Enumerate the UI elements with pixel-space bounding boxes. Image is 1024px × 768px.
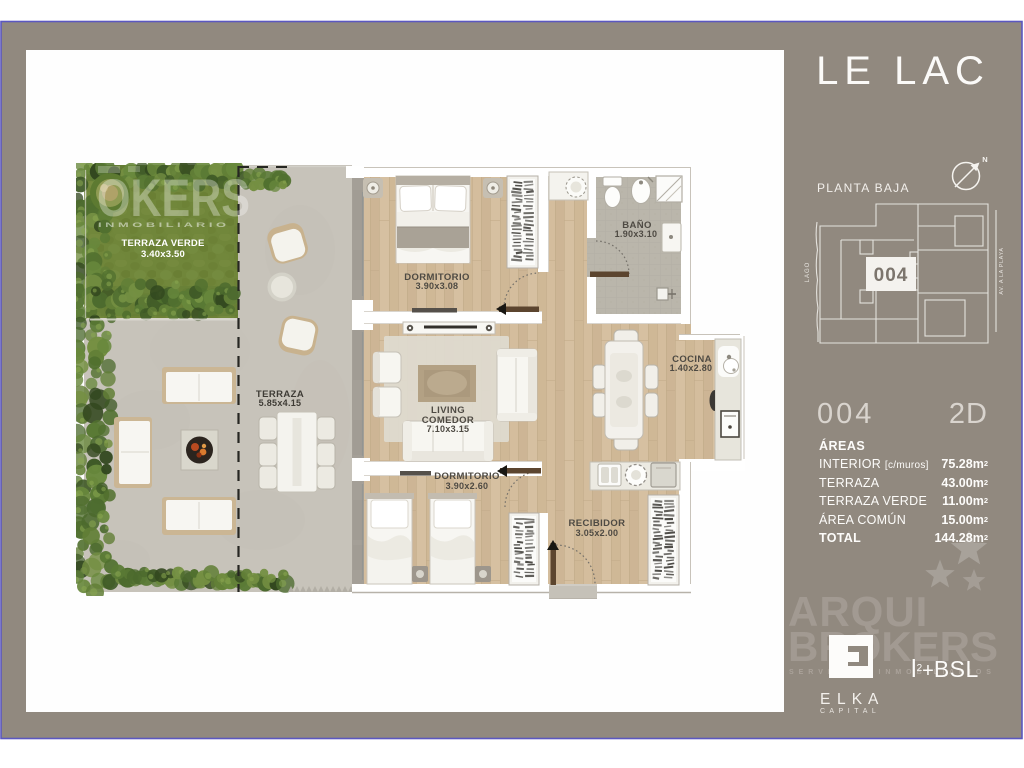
svg-text:3.05x2.00: 3.05x2.00 [576, 528, 619, 538]
svg-text:OKERS: OKERS [97, 169, 250, 228]
svg-text:C A P I T A L: C A P I T A L [820, 708, 877, 715]
svg-text:11.00m2: 11.00m2 [942, 494, 988, 508]
svg-text:3.40x3.50: 3.40x3.50 [141, 249, 185, 260]
svg-text:144.28m2: 144.28m2 [934, 531, 988, 545]
svg-text:LAGO: LAGO [805, 262, 811, 283]
svg-text:7.10x3.15: 7.10x3.15 [427, 424, 470, 434]
svg-text:1.90x3.10: 1.90x3.10 [615, 229, 658, 239]
svg-text:3.90x2.60: 3.90x2.60 [446, 481, 489, 491]
svg-text:I N M O B I L I A R I O: I N M O B I L I A R I O [98, 222, 226, 229]
svg-text:AV. A LA PLAYA: AV. A LA PLAYA [999, 247, 1005, 294]
svg-text:INTERIOR [c/muros]: INTERIOR [c/muros] [819, 457, 929, 471]
svg-text:2D: 2D [949, 398, 988, 430]
svg-text:3.90x3.08: 3.90x3.08 [416, 281, 459, 291]
svg-text:ÁREAS: ÁREAS [819, 438, 865, 453]
svg-text:PLANTA BAJA: PLANTA BAJA [817, 181, 910, 195]
svg-text:TERRAZA: TERRAZA [819, 476, 880, 490]
svg-text:75.28m2: 75.28m2 [941, 457, 988, 471]
svg-text:43.00m2: 43.00m2 [941, 476, 988, 490]
svg-text:ÁREA COMÚN: ÁREA COMÚN [819, 512, 906, 527]
svg-text:TERRAZA VERDE: TERRAZA VERDE [819, 494, 927, 508]
svg-text:E L K A: E L K A [820, 691, 880, 708]
svg-text:LE LAC: LE LAC [816, 49, 990, 93]
svg-text:004: 004 [817, 398, 874, 430]
svg-text:TOTAL: TOTAL [819, 531, 861, 545]
svg-text:5.85x4.15: 5.85x4.15 [259, 398, 302, 408]
svg-text:TERRAZA VERDE: TERRAZA VERDE [121, 238, 204, 249]
svg-text:l2+BSL: l2+BSL [911, 655, 979, 683]
svg-text:15.00m2: 15.00m2 [941, 513, 988, 527]
svg-text:004: 004 [874, 265, 909, 286]
svg-text:1.40x2.80: 1.40x2.80 [670, 363, 713, 373]
svg-text:N: N [982, 155, 987, 164]
